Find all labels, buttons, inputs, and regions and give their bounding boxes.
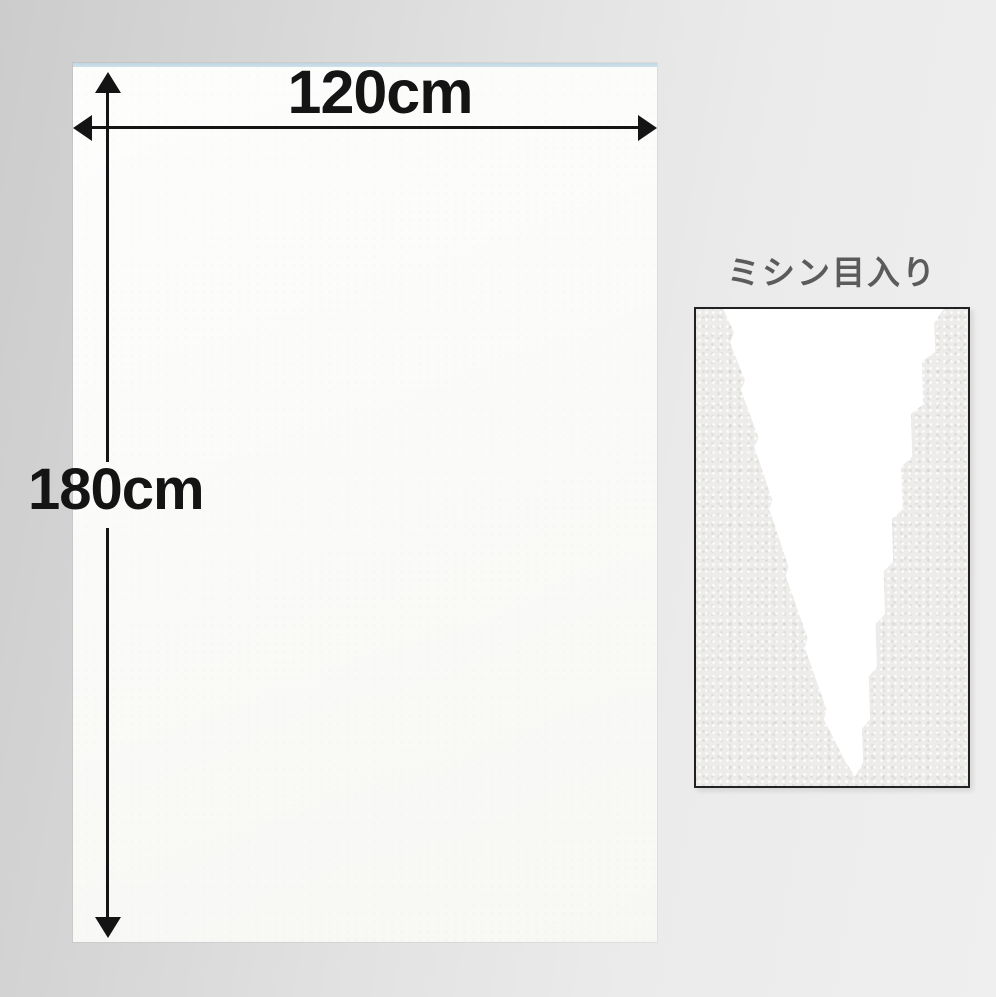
height-arrow-line-upper	[106, 90, 109, 462]
arrowhead-right-icon	[638, 115, 657, 141]
width-arrow-line	[86, 126, 642, 129]
perforation-tear-shape	[696, 309, 968, 786]
arrowhead-down-icon	[95, 917, 121, 938]
perforation-inset-image	[694, 307, 970, 788]
arrowhead-up-icon	[95, 72, 121, 93]
width-label: 120cm	[180, 62, 580, 123]
perforation-inset-label: ミシン目入り	[684, 246, 980, 294]
arrowhead-left-icon	[73, 115, 92, 141]
height-arrow-line-lower	[106, 528, 109, 924]
product-image-stage: 120cm 180cm ミシン目入り	[0, 0, 996, 997]
height-label: 180cm	[28, 461, 204, 519]
